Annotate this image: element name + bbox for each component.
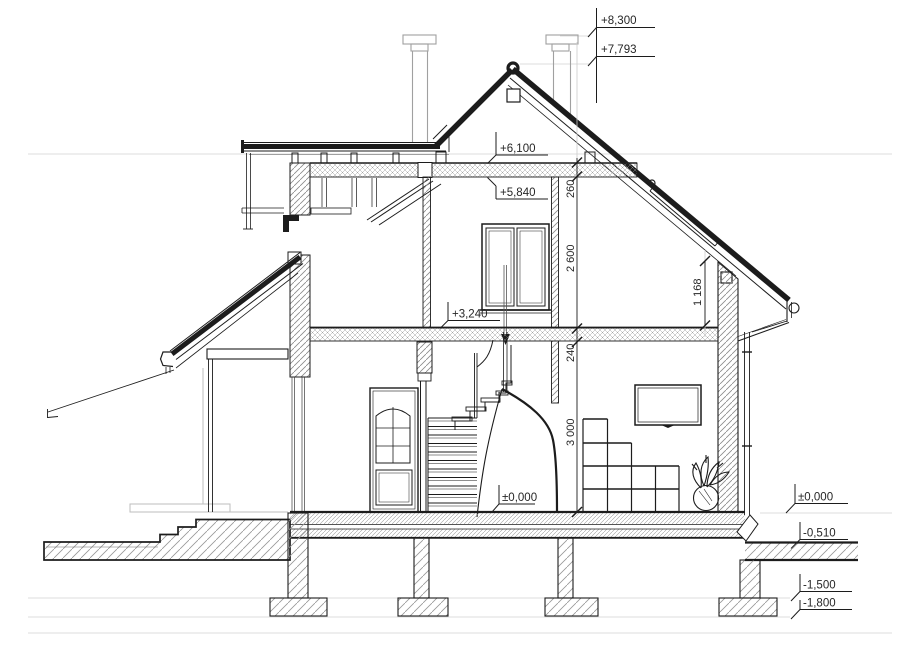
ceiling-joists [311,178,377,214]
wall-tv [635,385,701,428]
stair-wall-section [552,177,559,403]
eaves-right [738,299,799,341]
dim-floor-slab-thickness: 240 [565,344,577,362]
ridge-finial-icon [508,63,518,73]
elevation-markers [440,8,852,619]
stepped-shelving-unit [583,419,679,512]
porch-elements-behind [130,368,288,512]
attic-ceiling-slab [310,163,637,178]
section-drawing: 260 2 600 240 3 000 1 168 +8,300 +7,793 … [0,0,910,654]
level-ground-floor-right-label: ±0,000 [798,492,833,504]
exterior-steps-left [44,520,290,561]
dim-ground-storey-height: 3 000 [565,418,577,446]
porch [48,253,304,513]
right-wall-section [718,262,738,512]
stair-stringer-curve [477,389,502,517]
gutter-left-icon [161,352,175,367]
level-attic-ceiling-top-label: +6,100 [500,143,536,155]
level-attic-floor-label: +3,240 [452,309,488,321]
level-footing-top-label: -1,500 [803,580,836,592]
level-ground-floor-interior-label: ±0,000 [502,492,537,504]
staircase [428,332,557,517]
level-exterior-grade-label: -0,510 [803,528,836,540]
dimension-knee-wall: 1 168 [692,250,710,337]
exterior-slab-right [745,543,858,561]
chimney-right [546,35,578,118]
porch-beam [207,349,288,359]
ridge-purlin [507,89,520,102]
level-attic-ceiling-bottom-label: +5,840 [500,187,536,199]
dim-attic-slab-thickness: 260 [565,180,577,198]
ceiling-beam [418,163,432,178]
attic-window [480,224,551,313]
level-footing-bottom-label: -1,800 [803,598,836,610]
chimney-left [403,35,436,143]
gutter-right-icon [789,303,799,313]
level-ridge-label: +7,793 [601,44,637,56]
dim-knee-wall-height: 1 168 [692,278,704,306]
attic-partition-wall [423,177,431,328]
door-lintel-wall [417,342,432,373]
level-chimney-top-label: +8,300 [601,15,637,27]
drawing-canvas: 260 2 600 240 3 000 1 168 +8,300 +7,793 … [0,0,910,654]
foundations [270,513,777,616]
attic-floor-slab [310,328,718,342]
downspout-right [737,321,787,541]
dim-attic-storey-height: 2 600 [565,244,577,272]
ground-floor-slab [290,512,745,538]
left-wall-section [283,163,310,512]
interior-door [370,342,432,512]
